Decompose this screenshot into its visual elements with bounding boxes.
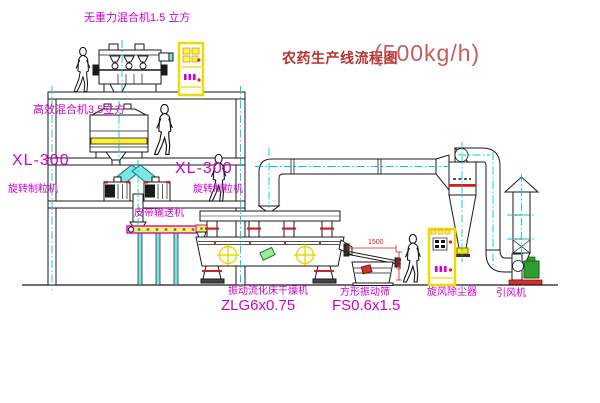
- label-granulator-right-name: 旋转制粒机: [193, 185, 243, 195]
- drawing-canvas: 农药生产线流程图 (500kg/h) 无重力混合机1.5 立方 高效混合机3.5…: [0, 0, 600, 403]
- exhaust-duct-drawing: [259, 155, 449, 206]
- control-cabinet-ground: [429, 229, 455, 285]
- diagram-capacity: (500kg/h): [374, 42, 480, 65]
- label-cyclone: 旋风除尘器: [427, 288, 477, 298]
- label-granulator-left-model: XL-300: [12, 153, 70, 169]
- worker-roof: [74, 47, 90, 91]
- label-fan: 引风机: [496, 289, 526, 299]
- dim-sieve-length: 1500: [368, 239, 384, 246]
- fluid-bed-dryer-drawing: [196, 206, 352, 283]
- label-belt-conveyor: 皮带输送机: [134, 209, 184, 219]
- control-cabinet-top: [179, 43, 203, 95]
- label-granulator-right-model: XL-300: [175, 161, 233, 177]
- label-sieve-model: FS0.6x1.5: [332, 298, 400, 313]
- gravity-mixer-drawing: [93, 44, 173, 92]
- label-dryer-model: ZLG6x0.75: [221, 298, 295, 313]
- worker-ground: [403, 234, 420, 282]
- worker-level2: [155, 104, 173, 154]
- belt-conveyor-drawing: [127, 226, 203, 285]
- label-high-eff-mixer: 高效混合机3.5立方: [33, 105, 125, 116]
- dim-sieve-height: 500: [394, 258, 401, 270]
- label-gravity-mixer: 无重力混合机1.5 立方: [84, 13, 190, 24]
- label-granulator-left-name: 旋转制粒机: [8, 185, 58, 195]
- label-dryer-name: 振动流化床干燥机: [228, 287, 308, 297]
